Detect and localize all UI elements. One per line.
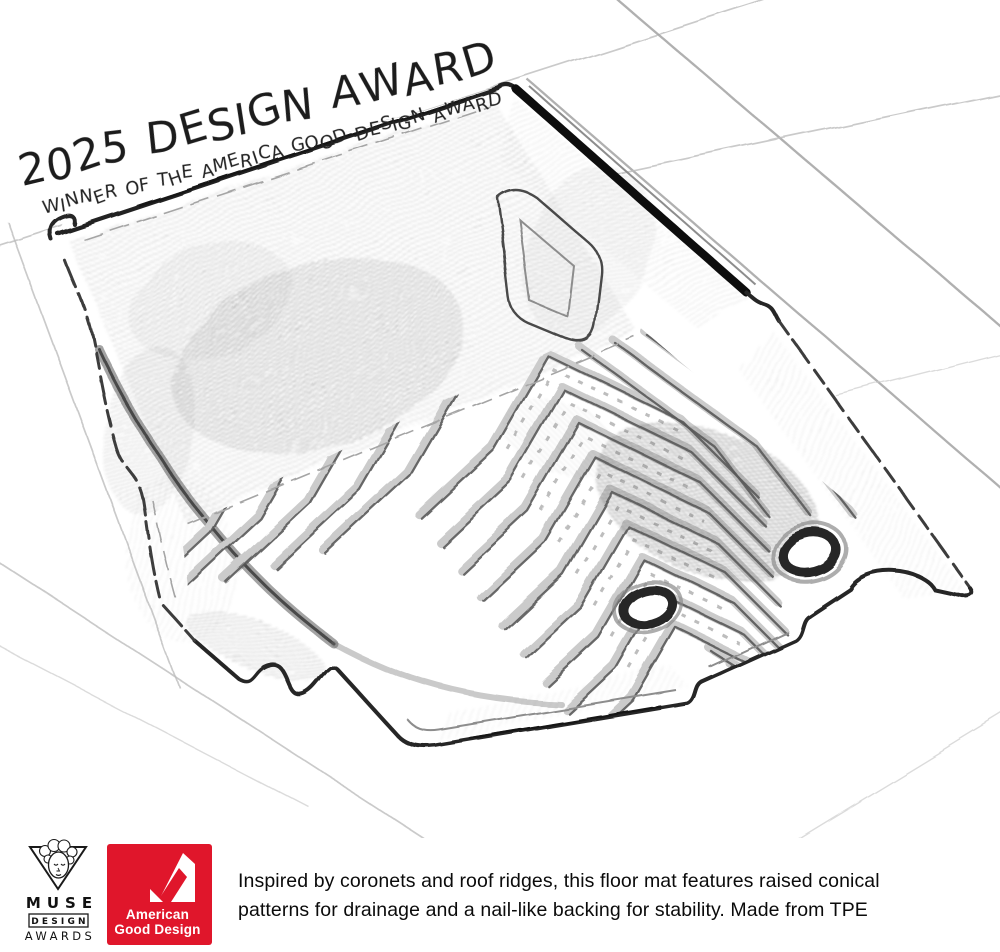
product-description: Inspired by coronets and roof ridges, th… xyxy=(238,867,946,925)
agd-label-good-design: Good Design xyxy=(107,922,208,937)
agd-a-icon xyxy=(149,850,203,902)
muse-face-icon xyxy=(40,840,78,879)
muse-wordmark: MUSE xyxy=(26,894,98,912)
agd-label-american: American xyxy=(107,907,208,922)
footer-band: MUSE DESIGN AWARDS American Good Design … xyxy=(0,838,1000,952)
muse-design-awards-logo: MUSE DESIGN AWARDS xyxy=(16,838,102,950)
american-good-design-logo: American Good Design xyxy=(107,844,212,945)
product-image: { "award_banner": { "title": "2025 DESIG… xyxy=(0,0,1000,952)
muse-awards-label: AWARDS xyxy=(25,929,95,943)
muse-design-label: DESIGN xyxy=(31,917,89,927)
